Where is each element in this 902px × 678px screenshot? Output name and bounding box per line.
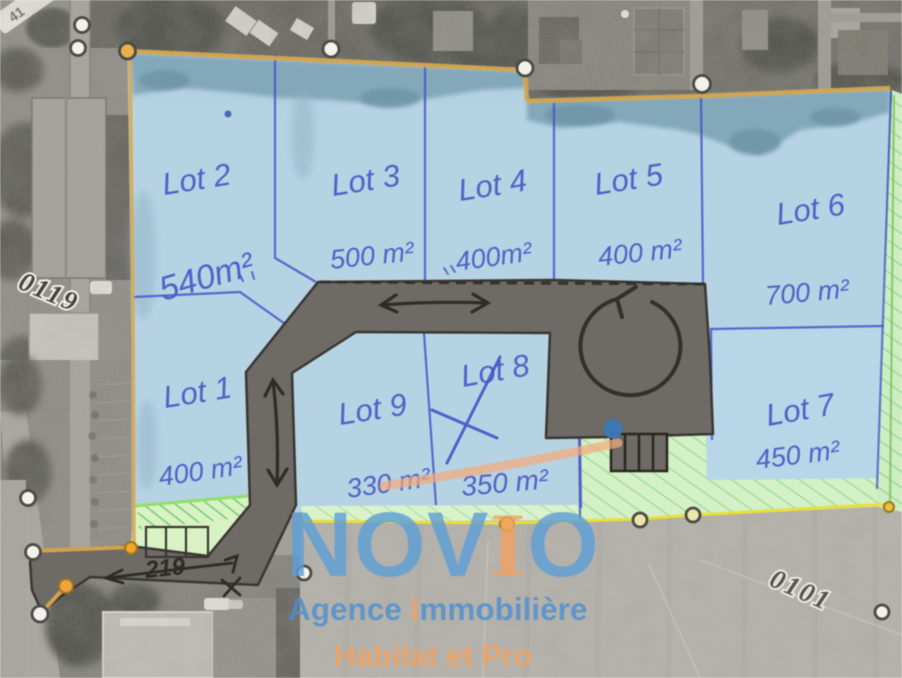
svg-text:Habitat et Pro: Habitat et Pro — [334, 639, 532, 673]
svg-text:Agence Immobilière: Agence Immobilière — [288, 591, 587, 627]
svg-text:219: 219 — [143, 553, 187, 584]
svg-text:NOVIO: NOVIO — [286, 494, 600, 596]
